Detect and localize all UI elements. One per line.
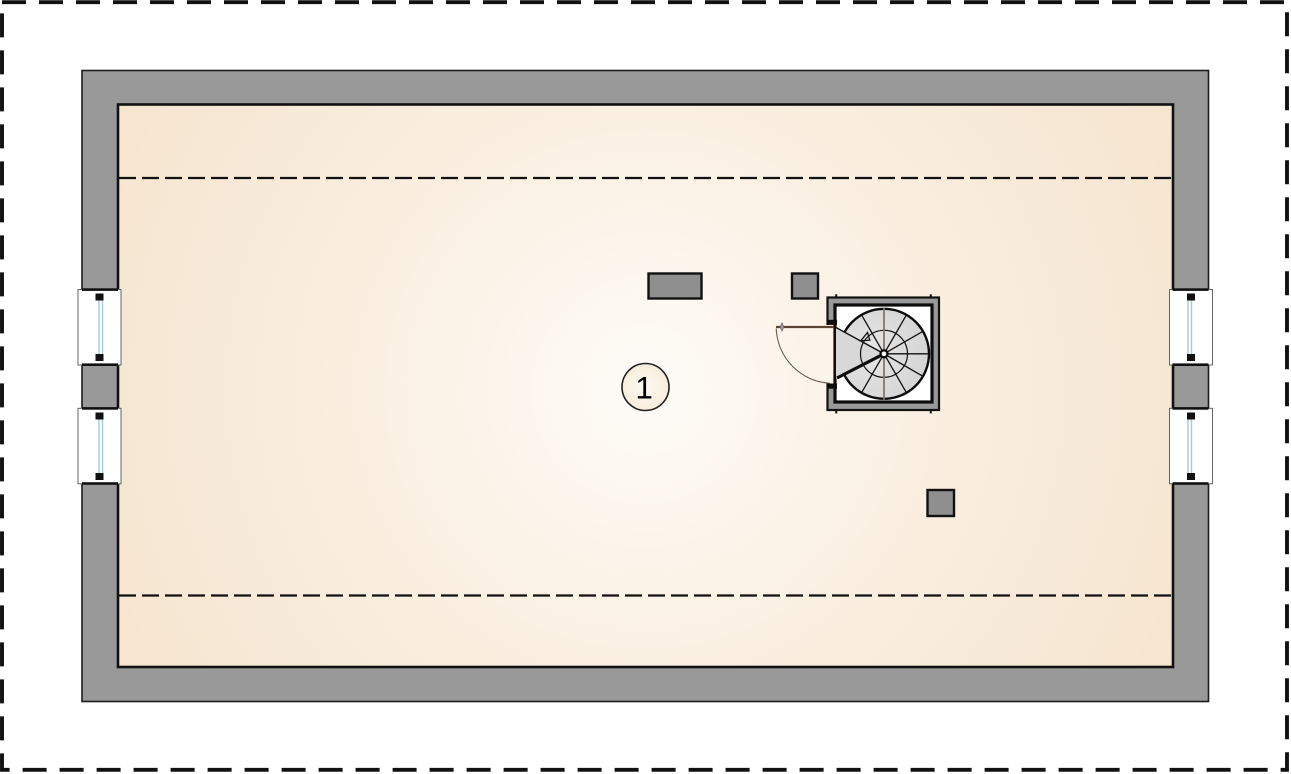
svg-text:1: 1 [635,370,653,406]
